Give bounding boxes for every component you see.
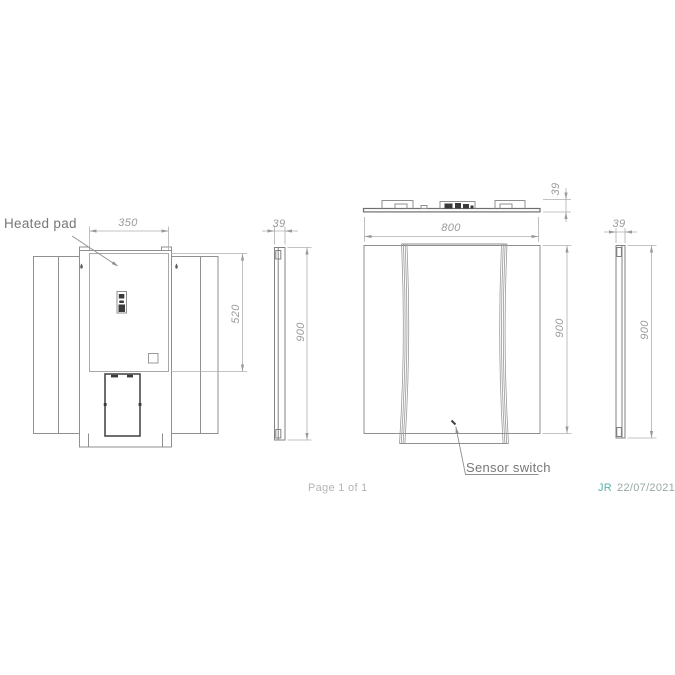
side-right-top-bracket: [617, 248, 622, 257]
dim-900-right-lines: [628, 246, 657, 439]
dim-pad-height: 520: [230, 304, 242, 324]
heated-pad-label: Heated pad: [4, 216, 77, 231]
hanger-drop-icon-left: [80, 264, 83, 269]
page-number-label: Page 1 of 1: [308, 482, 368, 494]
heated-pad-leader: [72, 236, 113, 263]
dim-height-side-left: 900: [295, 322, 307, 342]
front-mirror-outline: [364, 246, 540, 434]
sensor-switch-mark: [452, 421, 456, 425]
hanger-drop-icon-right: [175, 264, 178, 269]
front-panel-left-bevel-band: [400, 244, 409, 444]
author-initials: JR: [598, 482, 612, 494]
dimension-lines: [90, 188, 657, 440]
dim-mirror-width: 800: [441, 222, 461, 234]
dim-depth-top-view: 39: [550, 182, 562, 195]
dimension-arrowheads: [90, 193, 654, 441]
side-view-right: [616, 246, 625, 439]
top-stub: [421, 206, 427, 209]
back-right-wing: [172, 257, 219, 434]
top-view-mirror-edge: [364, 209, 541, 212]
dim-pad-width: 350: [118, 217, 138, 229]
dim-depth-side-right: 39: [612, 218, 625, 230]
dim-height-front: 900: [554, 318, 566, 338]
side-right-bottom-bracket: [617, 428, 622, 437]
side-right-profile: [616, 246, 625, 439]
top-view: [364, 201, 541, 212]
leader-lines: [72, 236, 539, 475]
sensor-switch-label: Sensor switch: [466, 460, 551, 475]
signature-block: JR 22/07/2021: [598, 482, 675, 494]
drawing-linework: [0, 0, 675, 675]
dim-depth-side-left: 39: [272, 218, 285, 230]
dim-900-left-lines: [288, 248, 312, 441]
front-panel-right-bevel-band: [500, 244, 509, 444]
dim-900-front-lines: [543, 246, 572, 434]
back-view: [34, 247, 219, 447]
pad-label-sticker: [117, 292, 127, 314]
side-view-left: [275, 248, 286, 441]
side-left-profile: [275, 248, 286, 441]
junction-box: [104, 374, 142, 436]
back-left-wing: [34, 257, 80, 434]
drawing-date: 22/07/2021: [617, 482, 675, 494]
dim-height-side-right: 900: [639, 320, 651, 340]
dim-39-right-lines: [604, 228, 637, 243]
dim-350-lines: [90, 227, 169, 251]
technical-drawing-page: Heated pad Sensor switch 350 520 39 900 …: [0, 0, 675, 675]
front-view: [364, 244, 540, 444]
pad-connector-square: [149, 354, 159, 364]
